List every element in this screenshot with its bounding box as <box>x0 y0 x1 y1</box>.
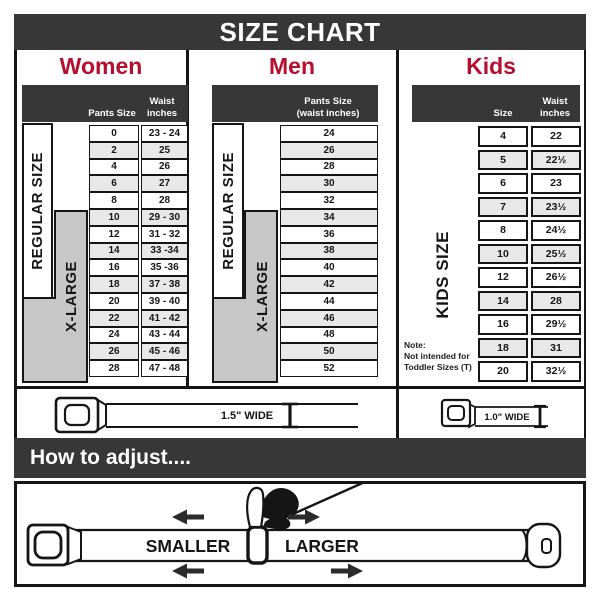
table-row: 42 <box>280 276 378 293</box>
pants-size-cell: 6 <box>89 175 139 192</box>
table-row: 52 <box>280 360 378 377</box>
men-regular-size-label: REGULAR SIZE <box>220 152 237 270</box>
size-cell: 16 <box>478 314 528 335</box>
pants-size-cell: 32 <box>280 192 378 209</box>
table-row: 32 <box>280 192 378 209</box>
women-xlarge-box: X-LARGE <box>55 210 88 382</box>
table-row: 2 25 <box>89 142 188 159</box>
kids-belt-illustration: 1.0" WIDE <box>435 396 560 432</box>
women-regular-size-box: REGULAR SIZE <box>22 123 53 299</box>
pants-size-cell: 4 <box>89 159 139 176</box>
table-row: 6 27 <box>89 175 188 192</box>
women-col-pants-label: Pants Size <box>88 108 136 119</box>
waist-cell: 41 - 42 <box>141 310 188 327</box>
belt-slider <box>248 527 267 563</box>
waist-cell: 35 -36 <box>141 259 188 276</box>
arrow-right-bottom-icon <box>331 564 363 579</box>
kids-col-size: Size <box>476 85 530 122</box>
buckle-clip <box>68 527 81 564</box>
title-bar: SIZE CHART <box>14 14 586 50</box>
waist-cell: 26 <box>141 159 188 176</box>
pants-size-cell: 26 <box>89 343 139 360</box>
larger-label: LARGER <box>285 536 359 556</box>
waist-cell: 31 <box>531 338 581 359</box>
table-row: 12 26½ <box>478 267 581 288</box>
table-row: 44 <box>280 293 378 310</box>
women-table-header: Pants Size Waist inches <box>22 85 188 122</box>
table-row: 16 29½ <box>478 314 581 335</box>
width-measure-icon <box>534 405 546 428</box>
pants-size-cell: 38 <box>280 243 378 260</box>
size-cell: 12 <box>478 267 528 288</box>
women-col-pants-size: Pants Size <box>85 85 139 122</box>
pants-size-cell: 26 <box>280 142 378 159</box>
kids-table: 4 22 5 22½ 6 23 7 23½ 8 24½ <box>478 126 581 382</box>
adjust-heading: How to adjust.... <box>14 446 191 470</box>
pants-size-cell: 42 <box>280 276 378 293</box>
pants-size-cell: 52 <box>280 360 378 377</box>
table-row: 4 22 <box>478 126 581 147</box>
table-row: 20 32½ <box>478 361 581 382</box>
waist-cell: 28 <box>141 192 188 209</box>
table-row: 30 <box>280 175 378 192</box>
table-row: 14 28 <box>478 291 581 312</box>
men-xlarge-box: X-LARGE <box>246 210 278 382</box>
women-regular-size-label: REGULAR SIZE <box>29 152 46 270</box>
pants-size-cell: 34 <box>280 209 378 226</box>
table-row: 12 31 - 32 <box>89 226 188 243</box>
women-col-waist: Waist inches <box>138 85 186 122</box>
waist-cell: 32½ <box>531 361 581 382</box>
adult-belt-illustration: 1.5" WIDE <box>40 390 370 436</box>
kids-table-header: Size Waist inches <box>412 85 580 122</box>
smaller-label: SMALLER <box>146 536 231 556</box>
kids-note-line-2: Not intended for <box>404 351 478 362</box>
adjust-header-bar: How to adjust.... <box>14 438 586 478</box>
kids-note-line-1: Note: <box>404 340 478 351</box>
pants-size-cell: 12 <box>89 226 139 243</box>
table-row: 20 39 - 40 <box>89 293 188 310</box>
waist-cell: 23 <box>531 173 581 194</box>
divider-tables-belts <box>14 386 586 389</box>
table-row: 18 37 - 38 <box>89 276 188 293</box>
men-table: 24 26 28 30 32 34 36 <box>280 125 378 377</box>
table-row: 28 47 - 48 <box>89 360 188 377</box>
size-cell: 20 <box>478 361 528 382</box>
table-row: 14 33 -34 <box>89 243 188 260</box>
women-col-waist-label-1: Waist <box>150 96 175 107</box>
table-row: 34 <box>280 209 378 226</box>
pants-size-cell: 48 <box>280 327 378 344</box>
table-row: 24 <box>280 125 378 142</box>
table-row: 0 23 - 24 <box>89 125 188 142</box>
kids-heading: Kids <box>398 53 584 80</box>
pants-size-cell: 24 <box>89 327 139 344</box>
table-row: 26 <box>280 142 378 159</box>
men-col-pants-size: Pants Size (waist inches) <box>278 85 378 122</box>
divider-men-kids <box>396 50 399 438</box>
pants-size-cell: 50 <box>280 343 378 360</box>
men-regular-size-box: REGULAR SIZE <box>212 123 244 299</box>
pants-size-cell: 2 <box>89 142 139 159</box>
waist-cell: 22½ <box>531 150 581 171</box>
size-cell: 4 <box>478 126 528 147</box>
kids-col-waist-label-1: Waist <box>543 96 568 107</box>
table-row: 7 23½ <box>478 197 581 218</box>
waist-cell: 33 -34 <box>141 243 188 260</box>
size-cell: 6 <box>478 173 528 194</box>
size-cell: 5 <box>478 150 528 171</box>
waist-cell: 23 - 24 <box>141 125 188 142</box>
table-row: 16 35 -36 <box>89 259 188 276</box>
pants-size-cell: 28 <box>280 159 378 176</box>
table-row: 8 24½ <box>478 220 581 241</box>
table-row: 22 41 - 42 <box>89 310 188 327</box>
waist-cell: 43 - 44 <box>141 327 188 344</box>
women-xlarge-label: X-LARGE <box>63 261 80 332</box>
men-col-label-1: Pants Size <box>304 96 352 107</box>
table-row: 40 <box>280 259 378 276</box>
size-cell: 14 <box>478 291 528 312</box>
kids-col-waist-label-2: inches <box>540 108 570 119</box>
pants-size-cell: 18 <box>89 276 139 293</box>
table-row: 28 <box>280 159 378 176</box>
women-heading: Women <box>16 53 186 80</box>
width-measure-icon <box>282 403 298 428</box>
table-row: 50 <box>280 343 378 360</box>
table-row: 8 28 <box>89 192 188 209</box>
waist-cell: 29½ <box>531 314 581 335</box>
waist-cell: 39 - 40 <box>141 293 188 310</box>
pants-size-cell: 46 <box>280 310 378 327</box>
waist-cell: 25½ <box>531 244 581 265</box>
waist-cell: 25 <box>141 142 188 159</box>
table-row: 6 23 <box>478 173 581 194</box>
table-row: 18 31 <box>478 338 581 359</box>
waist-cell: 29 - 30 <box>141 209 188 226</box>
page-title: SIZE CHART <box>220 17 381 48</box>
table-row: 24 43 - 44 <box>89 327 188 344</box>
waist-cell: 22 <box>531 126 581 147</box>
table-row: 26 45 - 46 <box>89 343 188 360</box>
arrow-left-bottom-icon <box>172 564 204 579</box>
men-table-header: Pants Size (waist inches) <box>212 85 378 122</box>
pants-size-cell: 20 <box>89 293 139 310</box>
kids-note: Note: Not intended for Toddler Sizes (T) <box>404 340 478 373</box>
kids-note-line-3: Toddler Sizes (T) <box>404 362 478 373</box>
table-row: 48 <box>280 327 378 344</box>
adjust-illustration-box: SMALLER LARGER <box>14 481 586 587</box>
arrow-left-top-icon <box>172 510 204 525</box>
size-cell: 10 <box>478 244 528 265</box>
table-row: 10 29 - 30 <box>89 209 188 226</box>
men-col-label-2: (waist inches) <box>297 108 360 119</box>
waist-cell: 28 <box>531 291 581 312</box>
pants-size-cell: 16 <box>89 259 139 276</box>
size-cell: 18 <box>478 338 528 359</box>
size-cell: 8 <box>478 220 528 241</box>
men-xlarge-label: X-LARGE <box>254 261 271 332</box>
pants-size-cell: 10 <box>89 209 139 226</box>
table-row: 46 <box>280 310 378 327</box>
waist-cell: 45 - 46 <box>141 343 188 360</box>
pants-size-cell: 14 <box>89 243 139 260</box>
women-col-waist-label-2: inches <box>147 108 177 119</box>
pants-size-cell: 8 <box>89 192 139 209</box>
adjust-belt-illustration: SMALLER LARGER <box>17 484 583 584</box>
pants-size-cell: 0 <box>89 125 139 142</box>
kids-size-label: KIDS SIZE <box>433 231 453 319</box>
waist-cell: 47 - 48 <box>141 360 188 377</box>
pants-size-cell: 44 <box>280 293 378 310</box>
waist-cell: 27 <box>141 175 188 192</box>
frame-left-border <box>14 50 17 438</box>
table-row: 38 <box>280 243 378 260</box>
table-row: 4 26 <box>89 159 188 176</box>
waist-cell: 26½ <box>531 267 581 288</box>
waist-cell: 37 - 38 <box>141 276 188 293</box>
pants-size-cell: 40 <box>280 259 378 276</box>
pants-size-cell: 36 <box>280 226 378 243</box>
waist-cell: 23½ <box>531 197 581 218</box>
women-table: 0 23 - 24 2 25 4 26 6 27 8 28 <box>89 125 188 377</box>
pants-size-cell: 22 <box>89 310 139 327</box>
frame-right-border <box>584 50 587 438</box>
adult-width-label: 1.5" WIDE <box>221 410 273 422</box>
men-heading: Men <box>188 53 396 80</box>
table-row: 5 22½ <box>478 150 581 171</box>
table-row: 36 <box>280 226 378 243</box>
pants-size-cell: 30 <box>280 175 378 192</box>
size-chart-infographic: SIZE CHART Women Men Kids Pants Size Wai… <box>0 0 600 600</box>
size-cell: 7 <box>478 197 528 218</box>
kids-col-waist: Waist inches <box>528 85 582 122</box>
kids-width-label: 1.0" WIDE <box>484 412 529 423</box>
pants-size-cell: 24 <box>280 125 378 142</box>
waist-cell: 24½ <box>531 220 581 241</box>
pants-size-cell: 28 <box>89 360 139 377</box>
table-row: 10 25½ <box>478 244 581 265</box>
kids-col-size-label: Size <box>493 108 512 119</box>
waist-cell: 31 - 32 <box>141 226 188 243</box>
